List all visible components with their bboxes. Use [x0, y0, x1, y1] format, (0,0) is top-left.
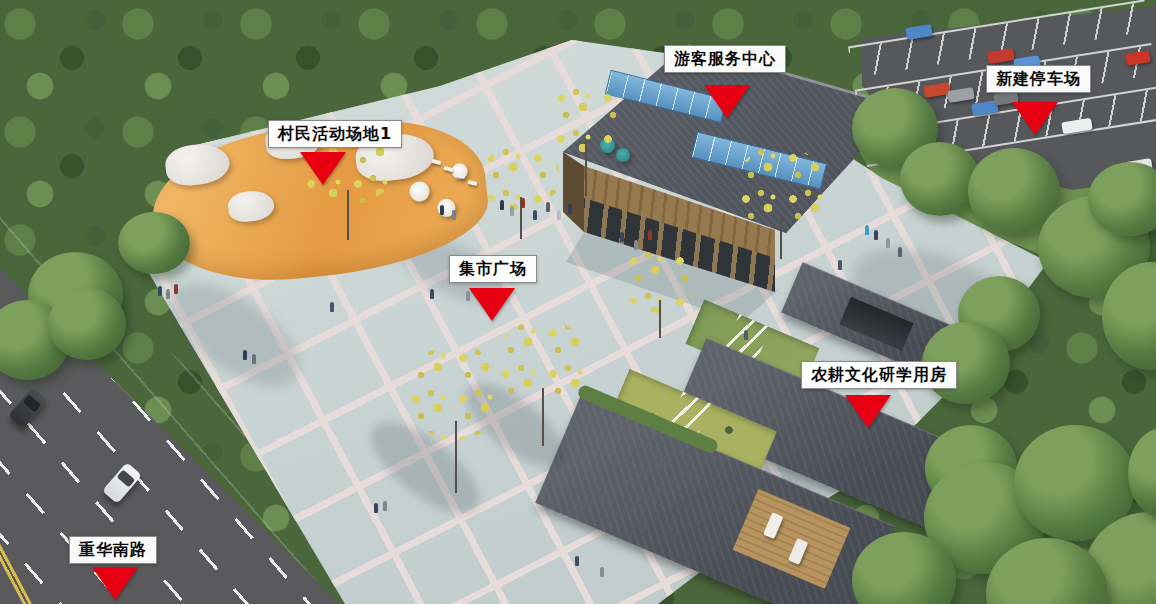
person — [521, 198, 525, 208]
tree-green — [118, 212, 190, 274]
person — [374, 503, 378, 513]
person — [620, 232, 624, 242]
person — [166, 289, 170, 299]
annotation-label-villager-activity-area: 村民活动场地1 — [268, 120, 402, 148]
annotation-marker-market-plaza — [469, 288, 515, 321]
person — [575, 556, 579, 566]
tree-green — [48, 288, 126, 360]
aerial-site-rendering: 游客服务中心 新建停车场 村民活动场地1 集市广场 农耕文化研学用房 重华南路 — [0, 0, 1156, 604]
person — [744, 330, 748, 340]
person — [568, 204, 572, 214]
person — [174, 284, 178, 294]
person — [874, 230, 878, 240]
person — [838, 260, 842, 270]
person — [452, 210, 456, 220]
person — [600, 567, 604, 577]
person — [158, 286, 162, 296]
umbrella — [616, 148, 630, 162]
person — [243, 350, 247, 360]
person — [634, 240, 638, 250]
lounge-chair — [788, 538, 808, 565]
person — [533, 210, 537, 220]
person — [500, 200, 504, 210]
person — [546, 202, 550, 212]
annotation-label-new-parking-lot: 新建停车场 — [986, 65, 1091, 93]
person — [330, 302, 334, 312]
person — [430, 289, 434, 299]
wood-deck — [733, 489, 851, 589]
person — [648, 230, 652, 240]
person — [440, 205, 444, 215]
person — [383, 501, 387, 511]
annotation-label-chonghua-south-road: 重华南路 — [69, 536, 157, 564]
annotation-marker-visitor-service-center — [704, 85, 750, 118]
annotation-marker-villager-activity-area — [300, 152, 346, 185]
annotation-marker-new-parking-lot — [1012, 102, 1058, 135]
annotation-label-market-plaza: 集市广场 — [449, 255, 537, 283]
lounge-chair — [763, 512, 783, 539]
person — [252, 354, 256, 364]
person — [886, 238, 890, 248]
umbrella — [409, 180, 431, 202]
person — [898, 247, 902, 257]
person — [865, 225, 869, 235]
tree-green — [900, 142, 980, 216]
person — [557, 210, 561, 220]
annotation-label-visitor-service-center: 游客服务中心 — [664, 45, 786, 73]
play-structure — [164, 141, 232, 187]
annotation-label-farming-study-rooms: 农耕文化研学用房 — [801, 361, 957, 389]
annotation-marker-chonghua-south-road — [92, 567, 138, 600]
person — [510, 206, 514, 216]
annotation-marker-farming-study-rooms — [845, 395, 891, 428]
tree-green — [1128, 428, 1156, 518]
play-structure — [227, 189, 276, 224]
